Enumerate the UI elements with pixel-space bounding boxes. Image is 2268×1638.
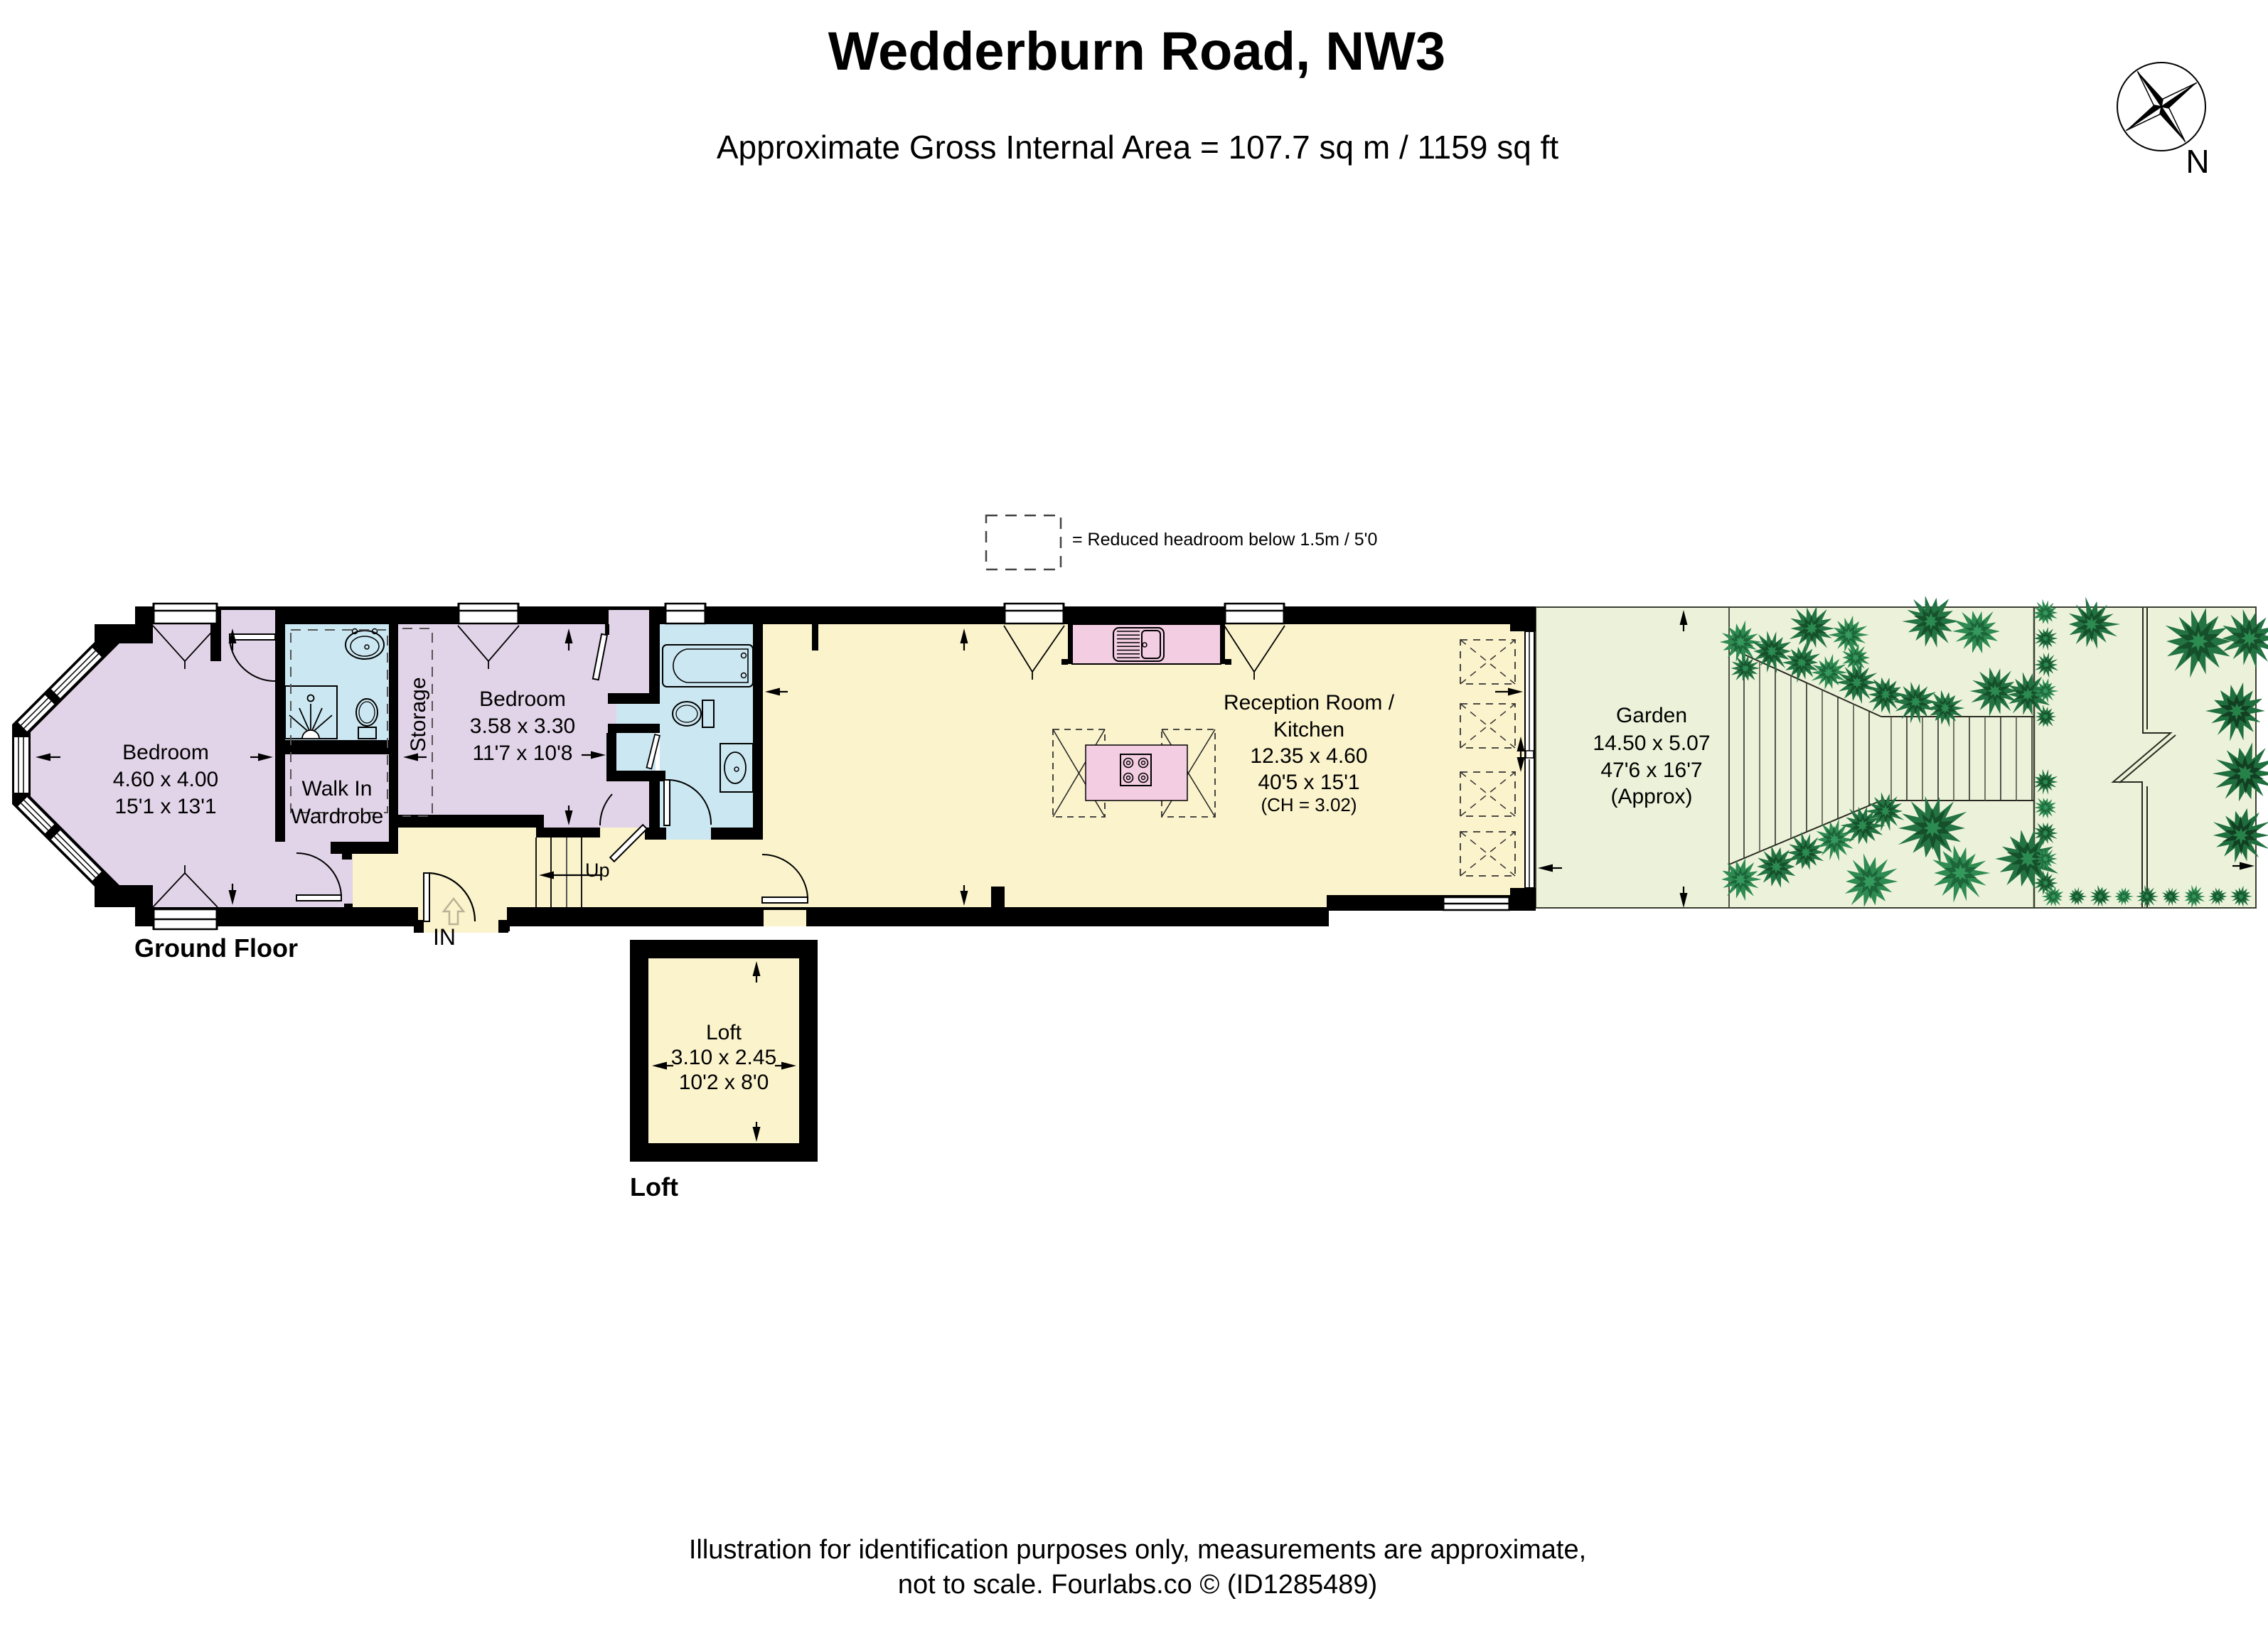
svg-text:Loft: Loft xyxy=(706,1021,742,1044)
svg-text:47'6 x 16'7: 47'6 x 16'7 xyxy=(1600,759,1702,782)
svg-text:Storage: Storage xyxy=(407,677,430,751)
svg-text:N: N xyxy=(2186,143,2209,180)
svg-text:= Reduced headroom below 1.5m: = Reduced headroom below 1.5m / 5'0 xyxy=(1072,530,1377,550)
svg-text:40'5 x 15'1: 40'5 x 15'1 xyxy=(1258,771,1359,794)
svg-text:14.50 x 5.07: 14.50 x 5.07 xyxy=(1593,732,1710,755)
svg-text:4.60 x 4.00: 4.60 x 4.00 xyxy=(113,768,218,791)
svg-text:Ground Floor: Ground Floor xyxy=(134,933,298,963)
svg-text:Bedroom: Bedroom xyxy=(479,687,566,711)
svg-text:15'1 x 13'1: 15'1 x 13'1 xyxy=(114,795,216,818)
svg-text:Wardrobe: Wardrobe xyxy=(291,805,384,828)
svg-text:Loft: Loft xyxy=(630,1172,678,1201)
svg-text:Up: Up xyxy=(585,860,610,881)
svg-text:3.10 x 2.45: 3.10 x 2.45 xyxy=(671,1046,776,1069)
svg-text:Garden: Garden xyxy=(1616,704,1687,727)
svg-text:Kitchen: Kitchen xyxy=(1273,718,1344,742)
svg-text:Bedroom: Bedroom xyxy=(122,741,209,764)
svg-text:Walk In: Walk In xyxy=(302,777,373,801)
svg-text:Wedderburn Road, NW3: Wedderburn Road, NW3 xyxy=(828,21,1445,82)
svg-text:(Approx): (Approx) xyxy=(1610,785,1692,808)
svg-text:IN: IN xyxy=(433,924,456,950)
svg-text:10'2 x 8'0: 10'2 x 8'0 xyxy=(679,1071,769,1094)
svg-text:3.58 x 3.30: 3.58 x 3.30 xyxy=(470,714,575,738)
svg-text:Reception Room /: Reception Room / xyxy=(1224,691,1395,714)
svg-text:11'7 x 10'8: 11'7 x 10'8 xyxy=(472,742,572,765)
svg-text:Illustration for identificatio: Illustration for identification purposes… xyxy=(689,1535,1586,1565)
svg-text:Approximate Gross Internal Are: Approximate Gross Internal Area = 107.7 … xyxy=(717,129,1558,166)
svg-text:not to scale. Fourlabs.co © (I: not to scale. Fourlabs.co © (ID1285489) xyxy=(898,1570,1377,1600)
svg-text:(CH = 3.02): (CH = 3.02) xyxy=(1261,794,1357,815)
svg-text:12.35 x 4.60: 12.35 x 4.60 xyxy=(1250,744,1367,768)
